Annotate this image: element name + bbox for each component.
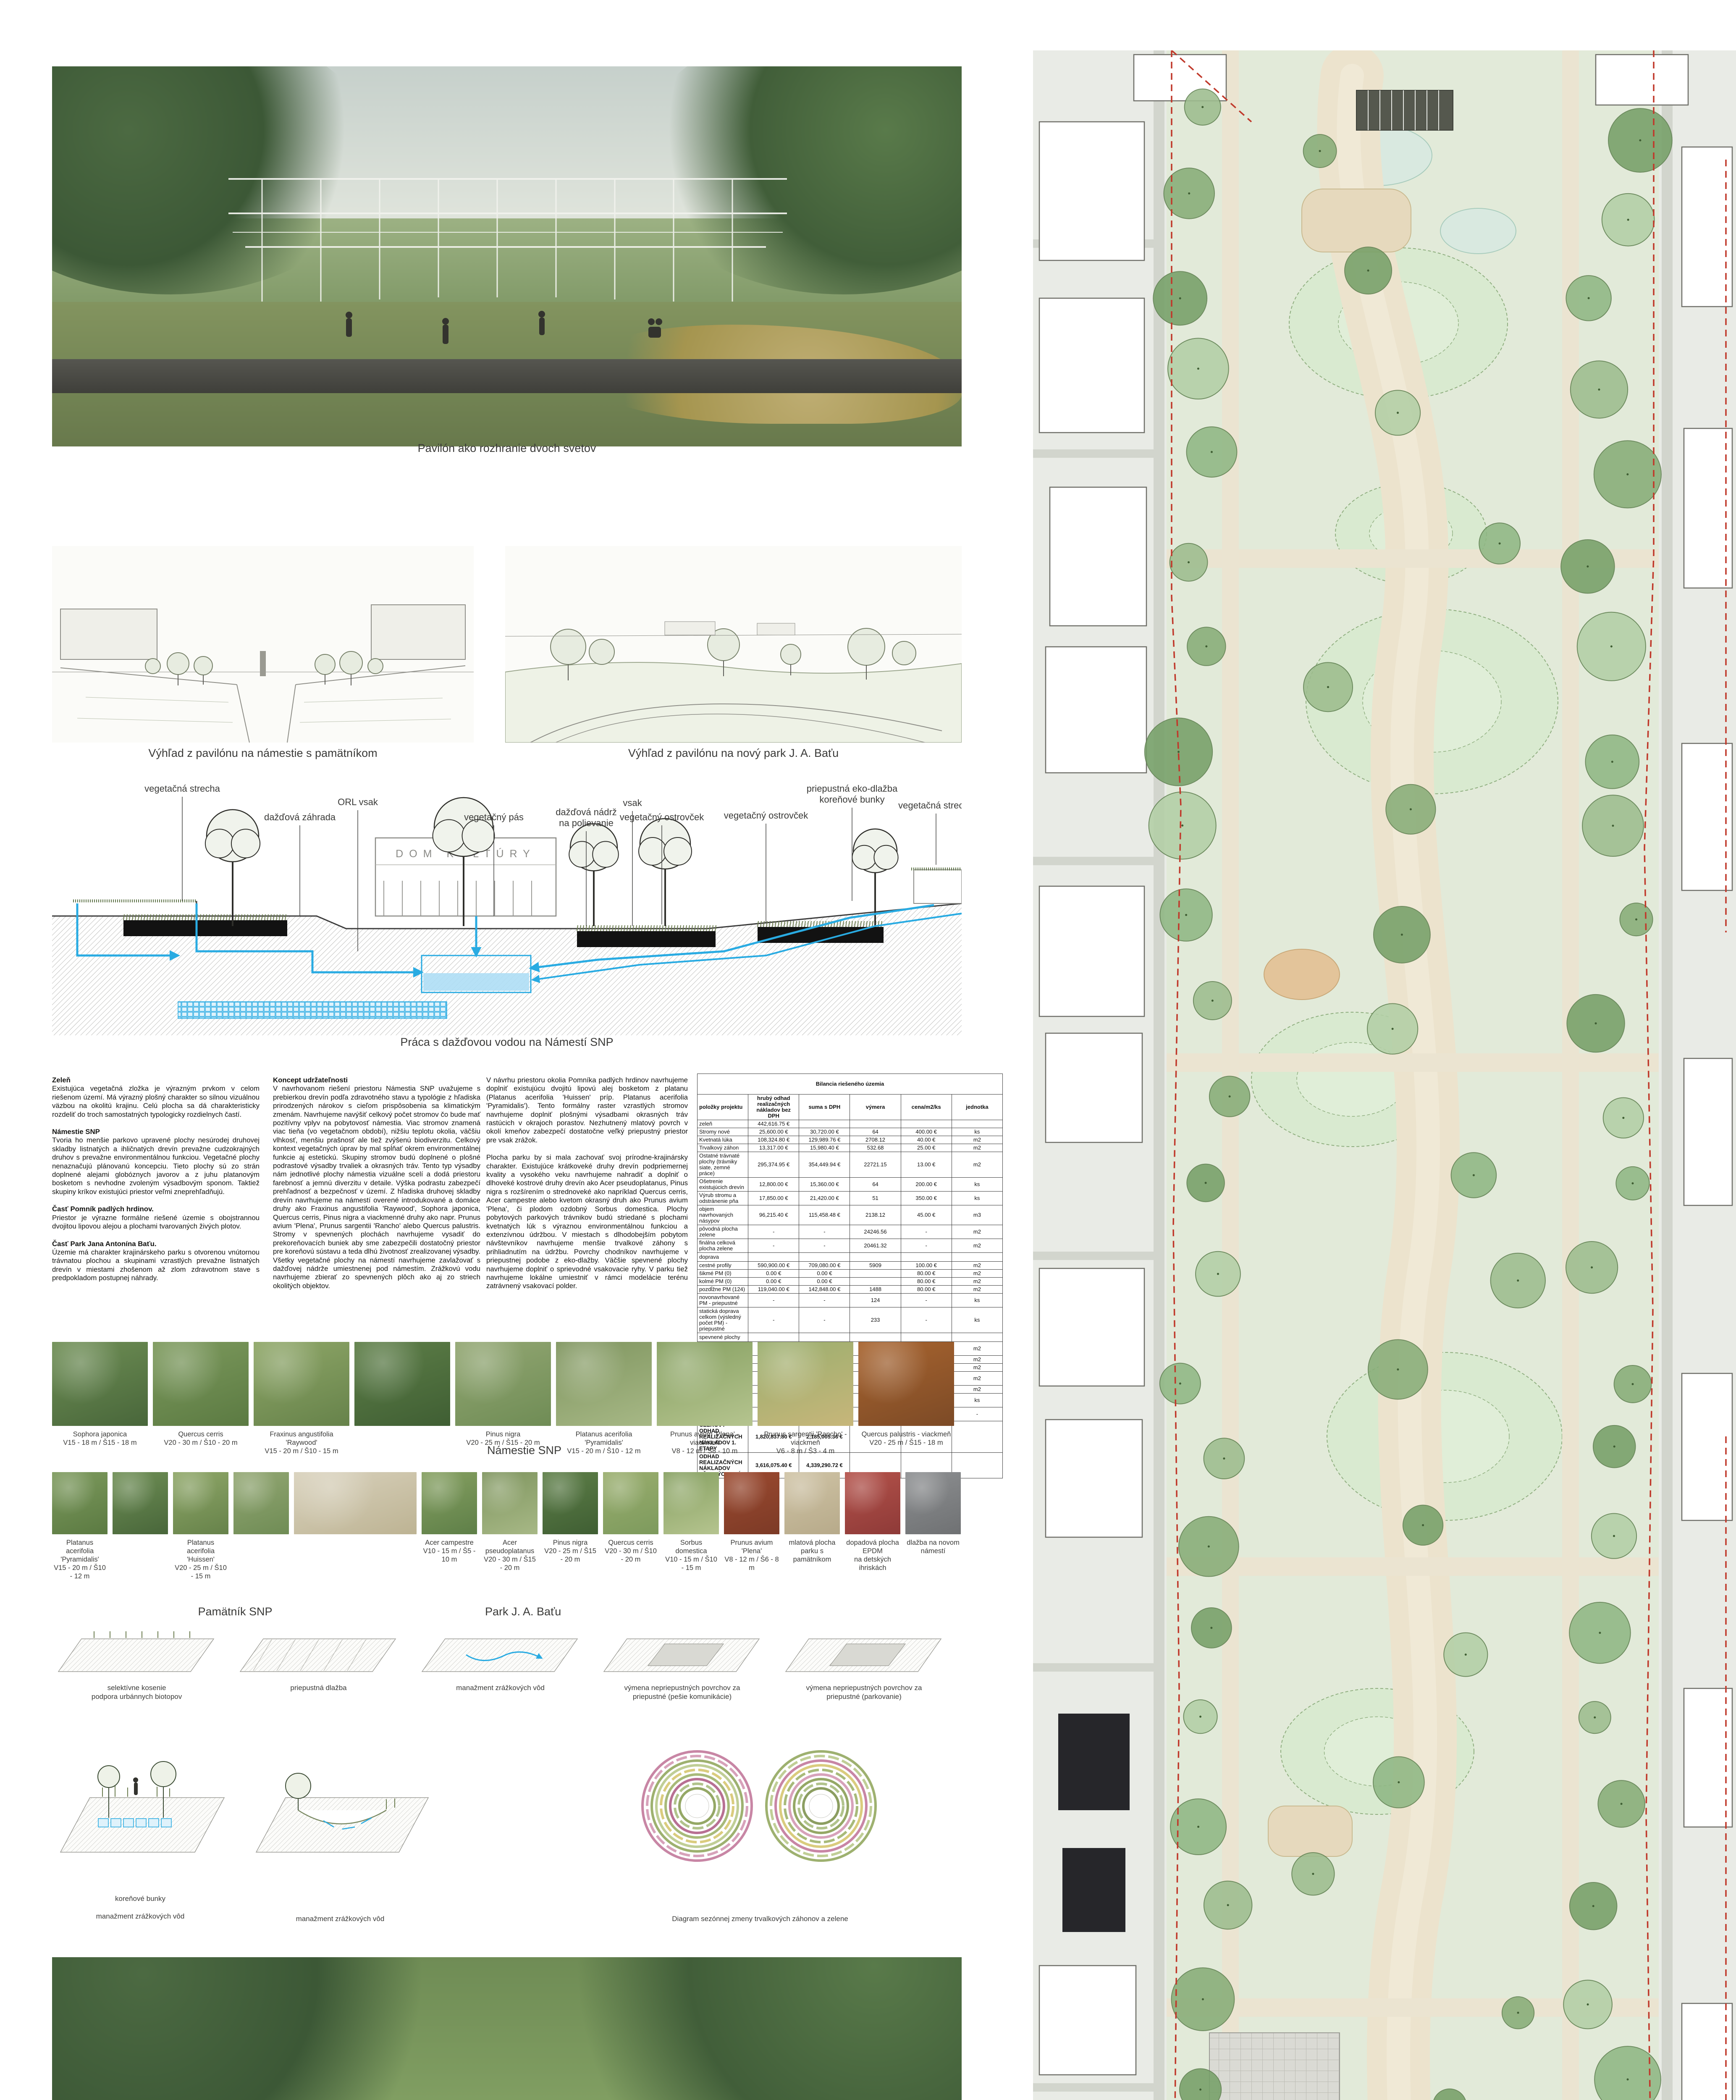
table-row: Ošetrenie existujúcich drevín12,800.00 €… (698, 1178, 1003, 1192)
tree-photo (422, 1472, 477, 1534)
tree-photo-item: mlatová plocha parku s pamätníkom (784, 1472, 840, 1580)
text-paragraph: Plocha parku by si mala zachovať svoj pr… (486, 1153, 688, 1291)
text-paragraph: Priestor je výrazne formálne riešené úze… (52, 1214, 260, 1231)
tree-photo (482, 1472, 538, 1534)
text-heading: Časť Park Jana Antonína Baťu. (52, 1240, 260, 1248)
text-paragraph: V navrhovanom riešení priestoru Námestia… (273, 1084, 480, 1290)
sketch-park-view (505, 546, 962, 743)
presentation-board: Pavilón ako rozhranie dvoch svetov (0, 0, 1736, 2100)
tree-photo (724, 1472, 779, 1534)
sustainability-diagram-caption: manažment zrážkových vôd (416, 1683, 585, 1692)
tree-photo-item: Sorbus domestica V10 - 15 m / Š10 - 15 m (663, 1472, 719, 1580)
tree-photo (173, 1472, 228, 1534)
tree-photo (845, 1472, 900, 1534)
text-column-koncept: Koncept udržateľnostiV navrhovanom rieše… (273, 1076, 480, 1299)
tree-photo-caption: dlažba na novom námestí (905, 1538, 961, 1555)
table-row: šikmé PM (0)0.00 €0.00 €80.00 €m2 (698, 1270, 1003, 1278)
tree-photo-caption: dopadová plocha EPDM na detských ihriská… (845, 1538, 900, 1572)
text-column-park: V návrhu priestoru okolia Pomníka padlýc… (486, 1076, 688, 1299)
svg-text:vegetačná strecha: vegetačná strecha (144, 783, 220, 794)
sketch-square-caption: Výhľad z pavilónu na námestie s pamätník… (52, 747, 474, 760)
table-row: statická doprava celkom (výsledný počet … (698, 1307, 1003, 1333)
tree-photo-caption: Platanus acerifolia 'Pyramidalis' V15 - … (52, 1538, 108, 1580)
sustainability-diagram-caption: selektívne kosenie podpora urbánnych bio… (52, 1683, 221, 1701)
sustainability-diagrams-row: selektívne kosenie podpora urbánnych bio… (52, 1630, 962, 1718)
water-section-diagram: DOM KULTÚRYvegetačná strechadažďová záhr… (52, 775, 962, 1035)
tree-photo-caption: Sorbus domestica V10 - 15 m / Š10 - 15 m (663, 1538, 719, 1572)
svg-text:dažďová záhrada: dažďová záhrada (264, 812, 336, 822)
row2-label-pamatnik: Pamätník SNP (160, 1605, 311, 1618)
sustainability-diagram: výmena nepriepustných povrchov za priepu… (598, 1630, 767, 1718)
tree-photo (858, 1342, 954, 1426)
render-pavilion-caption: Pavilón ako rozhranie dvoch svetov (52, 442, 962, 455)
tree-photo-caption: Acer pseudoplatanus V20 - 30 m / Š15 - 2… (482, 1538, 538, 1572)
diagram-root-cells (52, 1747, 228, 1877)
tree-photo-item: Fraxinus angustifolia 'Raywood' V15 - 20… (254, 1342, 349, 1455)
table-row: cestné profily590,900.00 €709,080.00 €59… (698, 1262, 1003, 1270)
tree-photo-caption: Sophora japonica V15 - 18 m / Š15 - 18 m (63, 1430, 136, 1447)
tree-photo-item (113, 1472, 168, 1580)
table-row: zeleň442,616.75 € (698, 1120, 1003, 1128)
tree-photo-item: Platanus acerifolia 'Huissen' V20 - 25 m… (173, 1472, 228, 1580)
table-row: objem navrhovaných násypov96,215.40 €115… (698, 1205, 1003, 1225)
table-row: novonavrhované PM - priepustné--124-ks (698, 1294, 1003, 1307)
table-row: Trvalkový záhon13,317.00 €15,980.40 €532… (698, 1144, 1003, 1152)
sketch-park-caption: Výhľad z pavilónu na nový park J. A. Bať… (505, 747, 962, 760)
tree-photo-caption: Platanus acerifolia 'Huissen' V20 - 25 m… (173, 1538, 228, 1580)
sustainability-diagram: priepustná dlažba (234, 1630, 403, 1718)
text-paragraph: V návrhu priestoru okolia Pomníka padlýc… (486, 1076, 688, 1144)
sustainability-diagram: manažment zrážkových vôd (416, 1630, 585, 1718)
text-column-zelen: ZeleňExistujúca vegetačná zložka je výra… (52, 1076, 260, 1291)
tree-photo-item: dlažba na novom námestí (905, 1472, 961, 1580)
table-row: doprava (698, 1253, 1003, 1262)
render-playground-image (52, 1957, 962, 2100)
svg-text:priepustná eko-dlažba: priepustná eko-dlažba (807, 783, 898, 794)
sustainability-diagram: selektívne kosenie podpora urbánnych bio… (52, 1630, 221, 1718)
tree-photo-caption: Prunus avium 'Plena' V8 - 12 m / Š6 - 8 … (724, 1538, 779, 1572)
text-paragraph: Územie má charakter krajinárskeho parku … (52, 1248, 260, 1283)
tree-photo-item: Sophora japonica V15 - 18 m / Š15 - 18 m (52, 1342, 148, 1455)
tree-photo-item: Prunus avium 'Plena' - viackmeň V8 - 12 … (657, 1342, 753, 1455)
svg-text:ORL vsak: ORL vsak (338, 797, 378, 807)
table-row: Stromy nové25,600.00 €30,720.00 €64400.0… (698, 1128, 1003, 1136)
tree-photo (233, 1472, 289, 1534)
tree-photo (543, 1472, 598, 1534)
tree-photo-caption: Quercus palustris - viackmeň V20 - 25 m … (862, 1430, 951, 1447)
tree-photo-item: Acer campestre V10 - 15 m / Š5 - 10 m (422, 1472, 477, 1580)
tree-photo (153, 1342, 249, 1426)
diagram-rings-caption: Diagram sezónnej zmeny trvalkových záhon… (630, 1914, 890, 1923)
tree-photo-caption: Prunus sargentii 'Rancho' - viackmeň V6 … (758, 1430, 853, 1455)
sustainability-diagram-caption: výmena nepriepustných povrchov za priepu… (598, 1683, 767, 1701)
tree-photo-item (233, 1472, 289, 1580)
table-row: Ostatné trávnaté plochy (trávniky siate,… (698, 1152, 1003, 1178)
row1-label: Námestie SNP (487, 1444, 655, 1457)
svg-text:koreňové bunky: koreňové bunky (819, 794, 884, 805)
tree-photo (603, 1472, 658, 1534)
tree-photo (294, 1472, 417, 1534)
tree-photo (254, 1342, 349, 1426)
text-heading: Časť Pomník padlých hrdinov. (52, 1205, 260, 1213)
table-title-row: Bilancia riešeného územia (698, 1074, 1003, 1095)
tree-photo-item: dopadová plocha EPDM na detských ihriská… (845, 1472, 900, 1580)
sustainability-diagram-caption: výmena nepriepustných povrchov za priepu… (779, 1683, 949, 1701)
svg-text:vsak: vsak (623, 798, 642, 808)
tree-photo (663, 1472, 719, 1534)
table-row: spevnené plochy (698, 1333, 1003, 1342)
table-row: finálna celková plocha zelene--20461.32-… (698, 1239, 1003, 1253)
tree-photo-caption: Fraxinus angustifolia 'Raywood' V15 - 20… (254, 1430, 349, 1455)
diagram-swale-caption: manažment zrážkových vôd (277, 1914, 403, 1923)
text-heading: Zeleň (52, 1076, 260, 1084)
table-header-row: položky projektuhrubý odhad realizačných… (698, 1095, 1003, 1120)
svg-text:na polievanie: na polievanie (559, 818, 614, 828)
diagram-root-cells-caption: koreňové bunky manažment zrážkových vôd (86, 1894, 195, 1921)
table-row: kolmé PM (0)0.00 €0.00 €80.00 €m2 (698, 1278, 1003, 1286)
tree-photo-item: Acer pseudoplatanus V20 - 30 m / Š15 - 2… (482, 1472, 538, 1580)
render-swing-set (52, 1957, 962, 2100)
tree-photo-caption: Quercus cerris V20 - 30 m / Š10 - 20 m (164, 1430, 237, 1447)
sustainability-diagram: výmena nepriepustných povrchov za priepu… (779, 1630, 949, 1718)
tree-photo-item: Pinus nigra V20 - 25 m / Š15 - 20 m (455, 1342, 551, 1455)
svg-text:vegetačný ostrovček: vegetačný ostrovček (724, 810, 809, 821)
tree-photos-row-1: Sophora japonica V15 - 18 m / Š15 - 18 m… (52, 1342, 962, 1455)
tree-photo-item: Platanus acerifolia 'Pyramidalis' V15 - … (556, 1342, 652, 1455)
tree-photo-item: Prunus avium 'Plena' V8 - 12 m / Š6 - 8 … (724, 1472, 779, 1580)
text-paragraph: Existujúca vegetačná zložka je výrazným … (52, 1084, 260, 1119)
tree-photo (905, 1472, 961, 1534)
render-pavilion-image (52, 66, 962, 446)
site-plan (1033, 50, 1736, 2100)
row2-label-park: Park J. A. Baťu (485, 1605, 653, 1618)
render-pavilion-structure (52, 66, 962, 446)
tree-photo-caption: Prunus avium 'Plena' - viackmeň V8 - 12 … (657, 1430, 753, 1455)
text-heading: Koncept udržateľnosti (273, 1076, 480, 1084)
table-row: Výrub stromu a odstránenie pňa17,850.00 … (698, 1192, 1003, 1205)
tree-photos-row-2: Platanus acerifolia 'Pyramidalis' V15 - … (52, 1472, 962, 1580)
diagram-seasonal-rings (630, 1735, 890, 1877)
tree-photo-item: Pinus nigra V20 - 25 m / Š15 - 20 m (543, 1472, 598, 1580)
tree-photo (354, 1342, 450, 1426)
water-section-caption: Práca s dažďovou vodou na Námestí SNP (52, 1036, 962, 1049)
text-paragraph: Tvoria ho menšie parkovo upravené plochy… (52, 1136, 260, 1196)
tree-photo (113, 1472, 168, 1534)
sketch-square-view (52, 546, 474, 743)
tree-photo-item (294, 1472, 417, 1580)
tree-photo (52, 1342, 148, 1426)
table-row: pozdĺžne PM (124)119,040.00 €142,848.00 … (698, 1286, 1003, 1294)
tree-photo-caption: Acer campestre V10 - 15 m / Š5 - 10 m (422, 1538, 477, 1564)
tree-photo (657, 1342, 753, 1426)
tree-photo-item: Quercus cerris V20 - 30 m / Š10 - 20 m (153, 1342, 249, 1455)
tree-photo-item: Prunus sargentii 'Rancho' - viackmeň V6 … (758, 1342, 853, 1455)
svg-text:vegetačný pás: vegetačný pás (464, 812, 524, 822)
table-row: pôvodná plocha zelene--24246.56-m2 (698, 1225, 1003, 1239)
tree-photo (784, 1472, 840, 1534)
table-row: Kvetnatá lúka108,324.80 €129,989.76 €270… (698, 1136, 1003, 1144)
svg-text:dažďová nádrž: dažďová nádrž (556, 807, 617, 817)
tree-photo (758, 1342, 853, 1426)
tree-photo-caption: Pinus nigra V20 - 25 m / Š15 - 20 m (543, 1538, 598, 1564)
svg-text:vegetačná strecha: vegetačná strecha (898, 800, 962, 811)
text-heading: Námestie SNP (52, 1128, 260, 1136)
tree-photo-item (354, 1342, 450, 1455)
tree-photo (52, 1472, 108, 1534)
tree-photo (455, 1342, 551, 1426)
tree-photo-caption: mlatová plocha parku s pamätníkom (784, 1538, 840, 1564)
tree-photo-caption: Quercus cerris V20 - 30 m / Š10 - 20 m (603, 1538, 658, 1564)
tree-photo-item: Quercus palustris - viackmeň V20 - 25 m … (858, 1342, 954, 1455)
tree-photo-item: Platanus acerifolia 'Pyramidalis' V15 - … (52, 1472, 108, 1580)
sustainability-diagram-caption: priepustná dlažba (234, 1683, 403, 1692)
tree-photo (556, 1342, 652, 1426)
tree-photo-item: Quercus cerris V20 - 30 m / Š10 - 20 m (603, 1472, 658, 1580)
diagram-swale (248, 1747, 433, 1877)
